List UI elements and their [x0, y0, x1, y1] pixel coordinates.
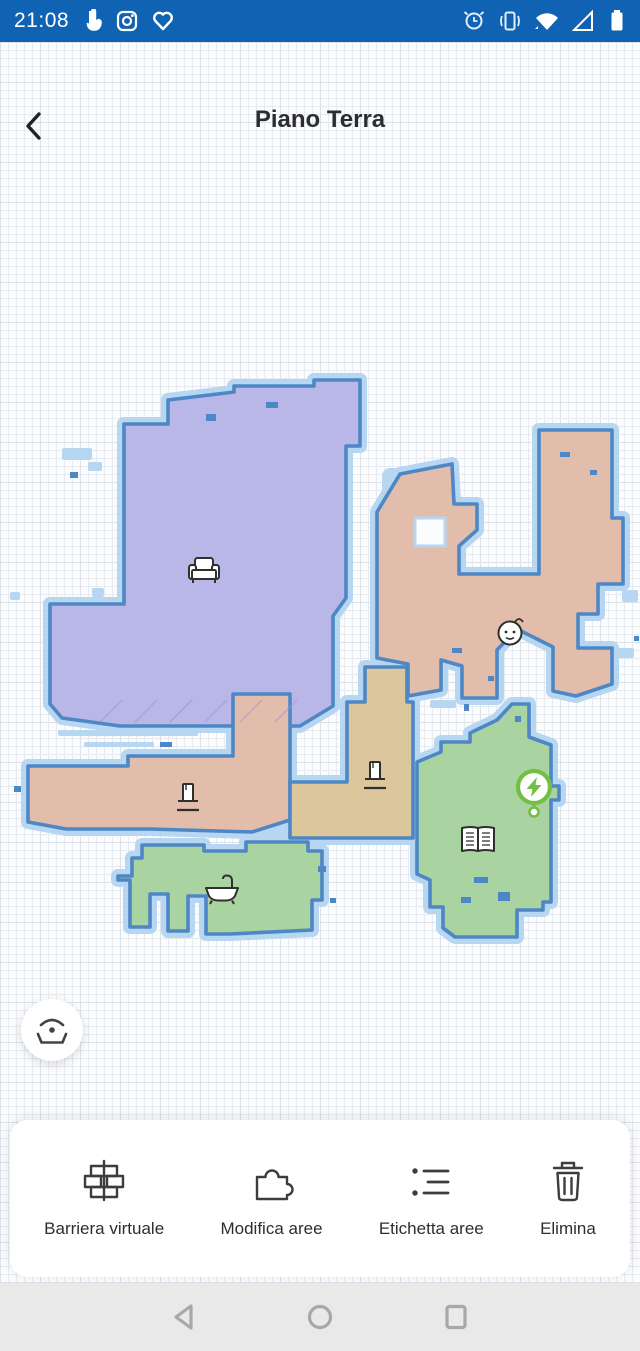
battery-icon	[608, 9, 626, 33]
room-living-room[interactable]	[50, 380, 360, 726]
vibrate-icon	[498, 9, 522, 33]
touch-icon	[81, 9, 103, 33]
instagram-icon	[115, 9, 139, 33]
tool-label: Modifica aree	[220, 1219, 322, 1239]
edit-areas-icon	[249, 1159, 295, 1205]
label-areas-icon	[408, 1159, 454, 1205]
book-icon	[462, 827, 494, 851]
virtual-barrier-button[interactable]: Barriera virtuale	[44, 1159, 164, 1239]
wifi-icon	[534, 9, 560, 33]
label-areas-button[interactable]: Etichetta aree	[379, 1159, 484, 1239]
delete-button[interactable]: Elimina	[540, 1159, 596, 1239]
locate-robot-icon	[32, 1010, 72, 1050]
back-chevron-icon	[23, 111, 45, 141]
tool-label: Barriera virtuale	[44, 1219, 164, 1239]
edit-areas-button[interactable]: Modifica aree	[220, 1159, 322, 1239]
tool-label: Elimina	[540, 1219, 596, 1239]
virtual-barrier-icon	[81, 1159, 127, 1205]
bottom-toolbar: Barriera virtuale Modifica aree Etichett…	[10, 1120, 630, 1277]
alarm-icon	[462, 9, 486, 33]
back-button[interactable]	[16, 108, 52, 144]
recents-square-icon[interactable]	[436, 1297, 476, 1337]
android-nav-bar	[0, 1283, 640, 1351]
home-circle-icon[interactable]	[300, 1297, 340, 1337]
locate-robot-button[interactable]	[21, 999, 83, 1061]
status-bar: 21:08	[0, 0, 640, 42]
page-title: Piano Terra	[0, 106, 640, 134]
delete-icon	[545, 1159, 591, 1205]
heart-icon	[151, 9, 175, 33]
tool-label: Etichetta aree	[379, 1219, 484, 1239]
app-screen: 21:08	[0, 0, 640, 1351]
signal-icon	[572, 9, 596, 33]
status-time: 21:08	[14, 9, 69, 33]
back-triangle-icon[interactable]	[164, 1297, 204, 1337]
header: Piano Terra	[0, 84, 640, 156]
